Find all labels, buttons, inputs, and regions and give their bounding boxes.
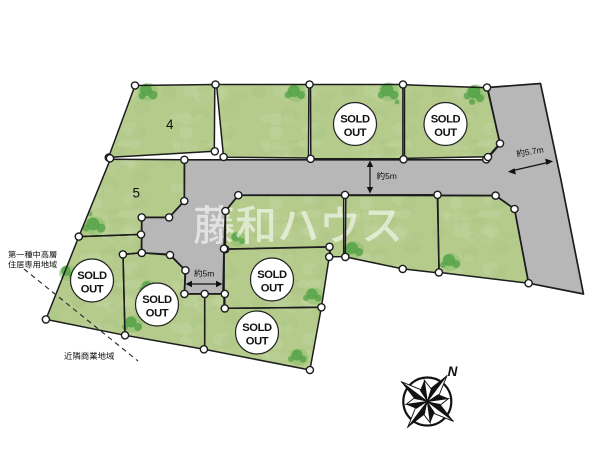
svg-text:5: 5 — [133, 186, 141, 201]
svg-text:OUT: OUT — [146, 307, 169, 319]
svg-text:SOLD: SOLD — [77, 270, 107, 282]
svg-text:N: N — [448, 364, 458, 379]
svg-text:SOLD: SOLD — [431, 114, 461, 126]
svg-text:OUT: OUT — [81, 283, 104, 295]
svg-text:4: 4 — [166, 117, 174, 132]
svg-text:5m: 5m — [385, 171, 397, 181]
svg-text:SOLD: SOLD — [242, 322, 272, 334]
svg-text:SOLD: SOLD — [340, 114, 370, 126]
svg-text:OUT: OUT — [434, 127, 457, 139]
svg-text:OUT: OUT — [344, 127, 367, 139]
svg-text:5m: 5m — [203, 269, 215, 279]
svg-text:OUT: OUT — [261, 282, 284, 294]
svg-text:OUT: OUT — [246, 335, 269, 347]
svg-text:SOLD: SOLD — [142, 294, 172, 306]
svg-text:SOLD: SOLD — [257, 269, 287, 281]
